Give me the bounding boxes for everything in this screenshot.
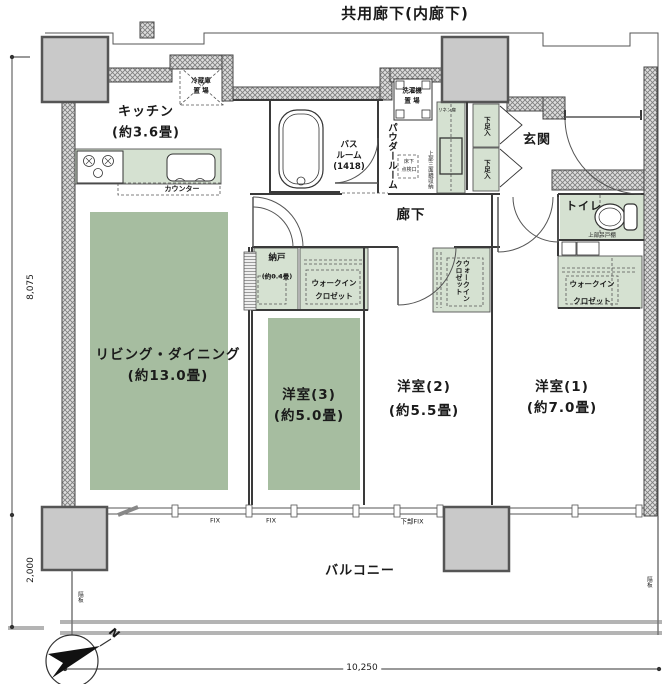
balcony-label: バルコニー xyxy=(325,565,395,580)
fix-label-1: FIX xyxy=(210,517,220,524)
nando-name: 納戸 xyxy=(268,254,285,264)
floor-access-label-1: 床下 xyxy=(404,160,414,166)
fridge-label-1: 冷蔵庫 xyxy=(191,77,211,84)
bathtub xyxy=(279,110,323,188)
dimension-height-main: 8,075 xyxy=(26,271,36,303)
shoe-label-1: 下足入 xyxy=(483,116,490,136)
powder-room-label: パウダールーム xyxy=(386,123,396,190)
pillar-top-left xyxy=(42,37,108,102)
washer-label-2: 置 場 xyxy=(404,97,419,104)
partition-label-left: 隔板 xyxy=(76,592,82,603)
floor-access-label-2: 点検口 xyxy=(401,168,416,174)
genkan-label: 玄関 xyxy=(523,134,551,149)
kitchen-name: キッチン xyxy=(118,106,174,121)
balcony-windows xyxy=(107,505,644,517)
wic2-label: ウォークイン クロゼット xyxy=(455,260,470,302)
pillar-bottom-left xyxy=(42,507,107,570)
room2-name: 洋室(2) xyxy=(397,380,451,396)
pillar-top-center xyxy=(442,37,508,102)
stove xyxy=(77,151,123,183)
bath-label-3: (1418) xyxy=(333,163,364,173)
room2-size: (約5.5畳) xyxy=(389,404,459,420)
bath-label-2: ルーム xyxy=(336,152,361,162)
compass-needle xyxy=(48,646,100,678)
counter-label: カウンター xyxy=(165,185,200,193)
room3-floor xyxy=(268,318,360,490)
lower-fix-label: 下部FIX xyxy=(400,518,423,525)
dimension-width: 10,250 xyxy=(343,663,381,673)
compass xyxy=(46,635,111,684)
corridor-label: 廊下 xyxy=(397,208,426,224)
room3-size: (約5.0畳) xyxy=(274,409,344,425)
fix-label-2: FIX xyxy=(266,517,276,524)
sink xyxy=(167,154,215,181)
room1-door xyxy=(498,197,553,252)
room3-name: 洋室(3) xyxy=(282,388,336,404)
shoe-shelf-marks xyxy=(500,106,522,187)
washer-label-1: 洗濯機 xyxy=(402,87,422,94)
kitchen-size: (約3.6畳) xyxy=(112,127,180,142)
toilet-door xyxy=(513,197,558,242)
room-floors xyxy=(90,193,644,490)
floorplan-linework xyxy=(0,0,671,684)
balcony-edge xyxy=(8,620,662,635)
living-door xyxy=(253,197,303,247)
room1-name: 洋室(1) xyxy=(535,380,589,396)
pillar-bottom-right xyxy=(444,507,509,571)
living-name: リビング・ダイニング xyxy=(96,348,241,364)
living-size: (約13.0畳) xyxy=(128,369,209,385)
wic3-label-1: ウォークイン xyxy=(312,280,357,289)
mirror-storage-label: 上部三面鏡収納 xyxy=(426,151,432,190)
dimension-height-balcony: 2,000 xyxy=(26,554,36,586)
cupboard-label: 上部吊戸棚 xyxy=(588,233,616,239)
nando-size: (約0.4畳) xyxy=(262,273,292,280)
pipe-space xyxy=(244,252,256,310)
linen-label: リネン庫 xyxy=(438,108,456,113)
wic1-label-1: ウォークイン xyxy=(570,281,615,290)
bath-label-1: バス xyxy=(340,141,357,151)
wic3-label-2: クロゼット xyxy=(315,293,353,302)
toilet-label: トイレ xyxy=(566,201,602,214)
common-corridor-label: 共用廊下(内廊下) xyxy=(341,5,469,22)
shoe-label-2: 下足入 xyxy=(483,159,490,179)
partition-label-right: 隔板 xyxy=(645,577,651,588)
wic1-label-2: クロゼット xyxy=(573,298,611,307)
fridge-label-2: 置 場 xyxy=(193,87,208,94)
floorplan: 共用廊下(内廊下) キッチン (約3.6畳) 冷蔵庫 置 場 カウンター リビン… xyxy=(0,0,671,684)
room1-size: (約7.0畳) xyxy=(527,401,597,417)
